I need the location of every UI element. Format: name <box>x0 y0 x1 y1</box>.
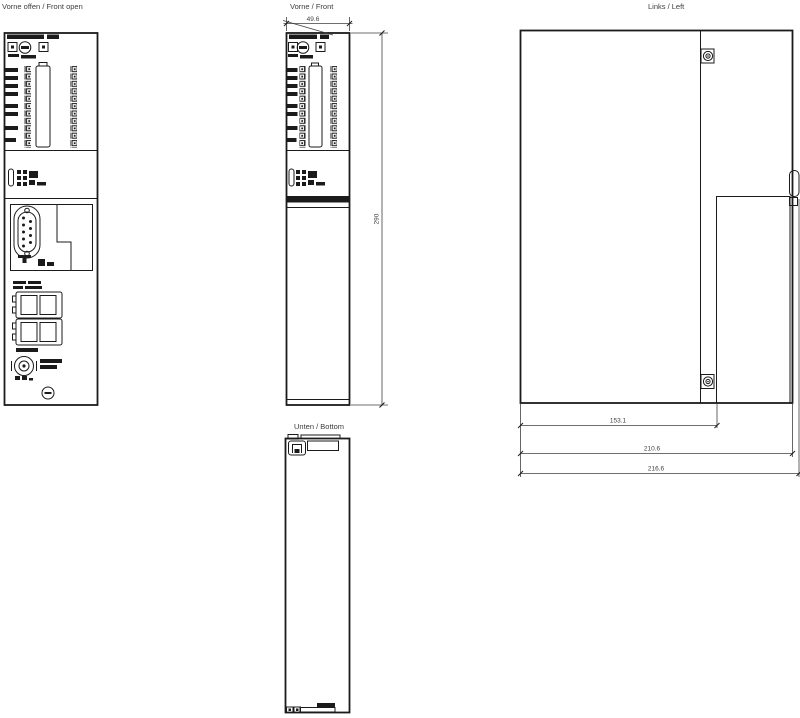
micro-text-bar <box>300 55 313 59</box>
drawing-svg: Vorne offen / Front open Vorne / Front L… <box>0 0 800 718</box>
led-column <box>25 66 32 148</box>
micro-text-bar <box>16 348 38 352</box>
front-door-edge <box>287 196 349 203</box>
led-column <box>331 66 338 148</box>
dim-depth-body: 210.6 <box>644 446 661 453</box>
dim-front-height: 290 <box>374 213 381 224</box>
left-view <box>521 31 800 404</box>
order-number-strip <box>289 35 329 40</box>
led-column <box>300 66 307 148</box>
micro-text-bar <box>8 54 19 57</box>
dim-depth-front: 153.1 <box>610 418 627 425</box>
order-number-strip <box>7 35 59 40</box>
led-column <box>71 66 78 148</box>
bottom-view <box>286 435 350 713</box>
front-open-view <box>5 33 98 405</box>
front-view <box>287 33 350 405</box>
front-height-dimension: 290 <box>351 31 388 408</box>
dim-front-width: 49.6 <box>307 16 320 23</box>
micro-text-bar <box>288 54 298 57</box>
left-view-label: Links / Left <box>648 2 685 11</box>
micro-text-bar <box>21 55 36 59</box>
dim-depth-total: 216.6 <box>648 466 665 473</box>
front-view-label: Vorne / Front <box>290 2 334 11</box>
dimension-drawing: Vorne offen / Front open Vorne / Front L… <box>0 0 800 718</box>
bottom-view-label: Unten / Bottom <box>294 422 344 431</box>
front-open-view-label: Vorne offen / Front open <box>2 2 83 11</box>
